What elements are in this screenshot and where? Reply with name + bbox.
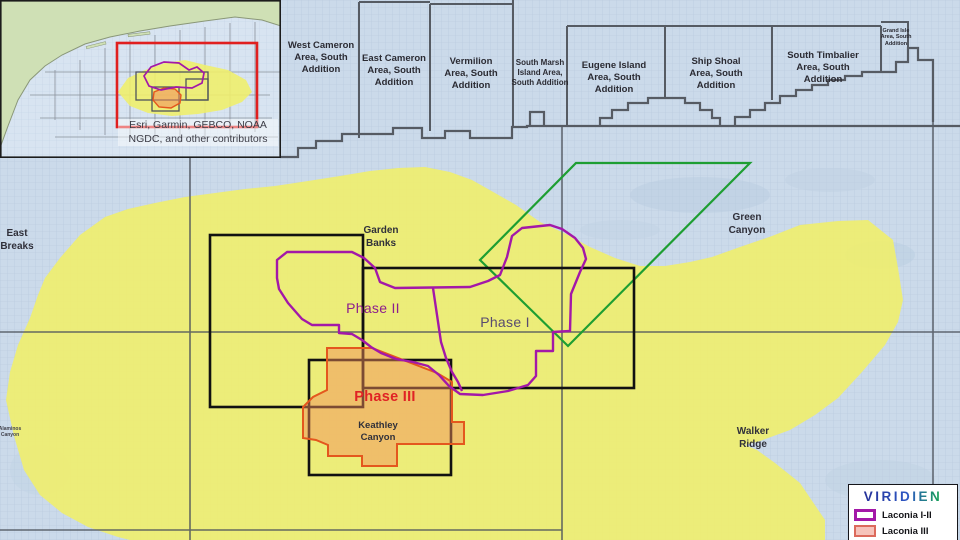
area-label-south-timbalier: South Timbalier Area, South Addition: [786, 50, 860, 86]
label-phase-1: Phase I: [465, 314, 545, 332]
attribution-line-2: NGDC, and other contributors: [118, 133, 278, 147]
area-label-grand-isle: Grand Isle Area, South Addition: [876, 28, 916, 47]
legend-item-laconia-3: Laconia III: [854, 525, 952, 537]
legend-label-laconia-3: Laconia III: [882, 526, 928, 537]
map-attribution: Esri, Garmin, GEBCO, NOAA NGDC, and othe…: [118, 119, 278, 146]
area-label-eugene-island: Eugene Island Area, South Addition: [578, 60, 650, 96]
area-label-west-cameron: West Cameron Area, South Addition: [282, 40, 360, 76]
viridien-logo: VIRIDIEN: [854, 489, 952, 504]
label-garden-banks: Garden Banks: [351, 225, 411, 250]
label-east-breaks: East Breaks: [0, 228, 39, 253]
legend-item-laconia-1-2: Laconia I-II: [854, 509, 952, 521]
map-canvas: West Cameron Area, South Addition East C…: [0, 0, 960, 540]
label-green-canyon: Green Canyon: [717, 212, 777, 237]
inset-laconia-3: [153, 88, 181, 108]
laconia-3-swatch: [854, 525, 876, 537]
label-keathley-canyon: Keathley Canyon: [347, 420, 409, 444]
laconia-1-2-swatch: [854, 509, 876, 521]
attribution-line-1: Esri, Garmin, GEBCO, NOAA: [118, 119, 278, 133]
legend: VIRIDIEN Laconia I-II Laconia III: [848, 484, 958, 540]
area-label-east-cameron: East Cameron Area, South Addition: [356, 53, 432, 89]
area-label-vermilion: Vermilion Area, South Addition: [438, 56, 504, 92]
label-walker-ridge: Walker Ridge: [723, 426, 783, 451]
label-alaminos-canyon: Alaminos Canyon: [0, 426, 28, 439]
label-phase-3: Phase III: [345, 388, 425, 406]
area-label-south-marsh: South Marsh Island Area, South Addition: [508, 58, 572, 88]
label-phase-2: Phase II: [333, 300, 413, 318]
area-label-ship-shoal: Ship Shoal Area, South Addition: [682, 56, 750, 92]
legend-label-laconia-1-2: Laconia I-II: [882, 510, 932, 521]
